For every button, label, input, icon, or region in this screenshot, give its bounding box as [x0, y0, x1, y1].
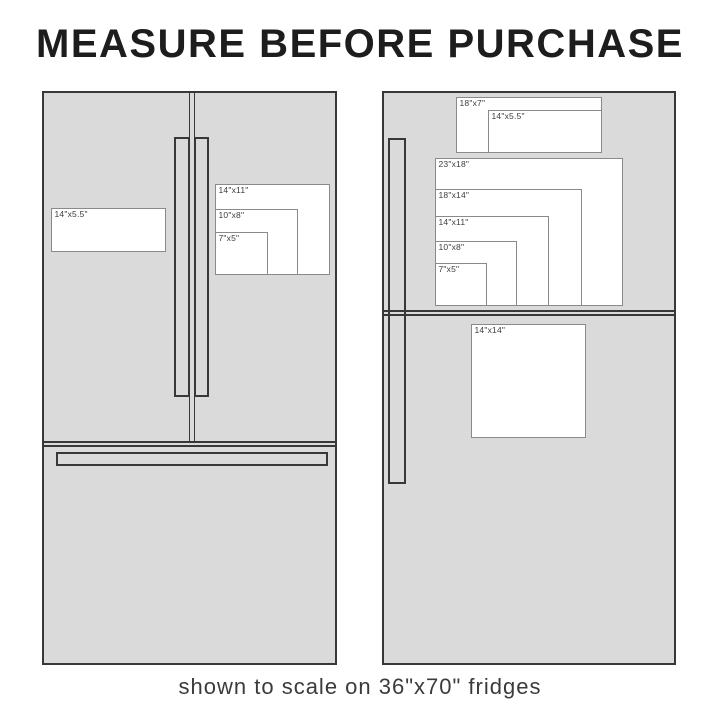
size-label: 10"x8" [439, 242, 465, 252]
freezer-drawer-handle [56, 452, 328, 466]
size-label: 7"x5" [439, 264, 460, 274]
left-door-handle [174, 137, 190, 397]
size-label: 14"x5.5" [55, 209, 88, 219]
size-label: 18"x14" [439, 190, 470, 200]
size-label: 18"x7" [460, 98, 486, 108]
size-label: 7"x5" [219, 233, 240, 243]
scale-caption: shown to scale on 36"x70" fridges [0, 674, 720, 700]
magnet-size-rect: 14"x14" [471, 324, 586, 438]
size-label: 23"x18" [439, 159, 470, 169]
size-label: 14"x11" [439, 217, 469, 227]
magnet-size-rect: 14"x5.5" [51, 208, 166, 252]
magnet-size-rect: 14"x5.5" [488, 110, 602, 153]
right-door-handle [194, 137, 209, 397]
freezer-divider-line-bottom [384, 314, 674, 316]
page-title: MEASURE BEFORE PURCHASE [0, 22, 720, 67]
measure-before-purchase-infographic: MEASURE BEFORE PURCHASE 14"x5.5" 14"x11"… [0, 0, 720, 720]
size-label: 14"x14" [475, 325, 506, 335]
top-freezer-fridge: 18"x7" 14"x5.5" 23"x18" 18"x14" 14"x11" … [382, 91, 676, 665]
freezer-divider-line-top [384, 310, 674, 312]
freezer-divider-line-bottom [44, 445, 335, 447]
french-door-fridge: 14"x5.5" 14"x11" 10"x8" 7"x5" [42, 91, 337, 665]
size-label: 14"x11" [219, 185, 249, 195]
size-label: 14"x5.5" [492, 111, 525, 121]
magnet-size-rect: 7"x5" [435, 263, 487, 306]
size-label: 10"x8" [219, 210, 245, 220]
freezer-divider-line-top [44, 441, 335, 443]
magnet-size-rect: 7"x5" [215, 232, 268, 275]
